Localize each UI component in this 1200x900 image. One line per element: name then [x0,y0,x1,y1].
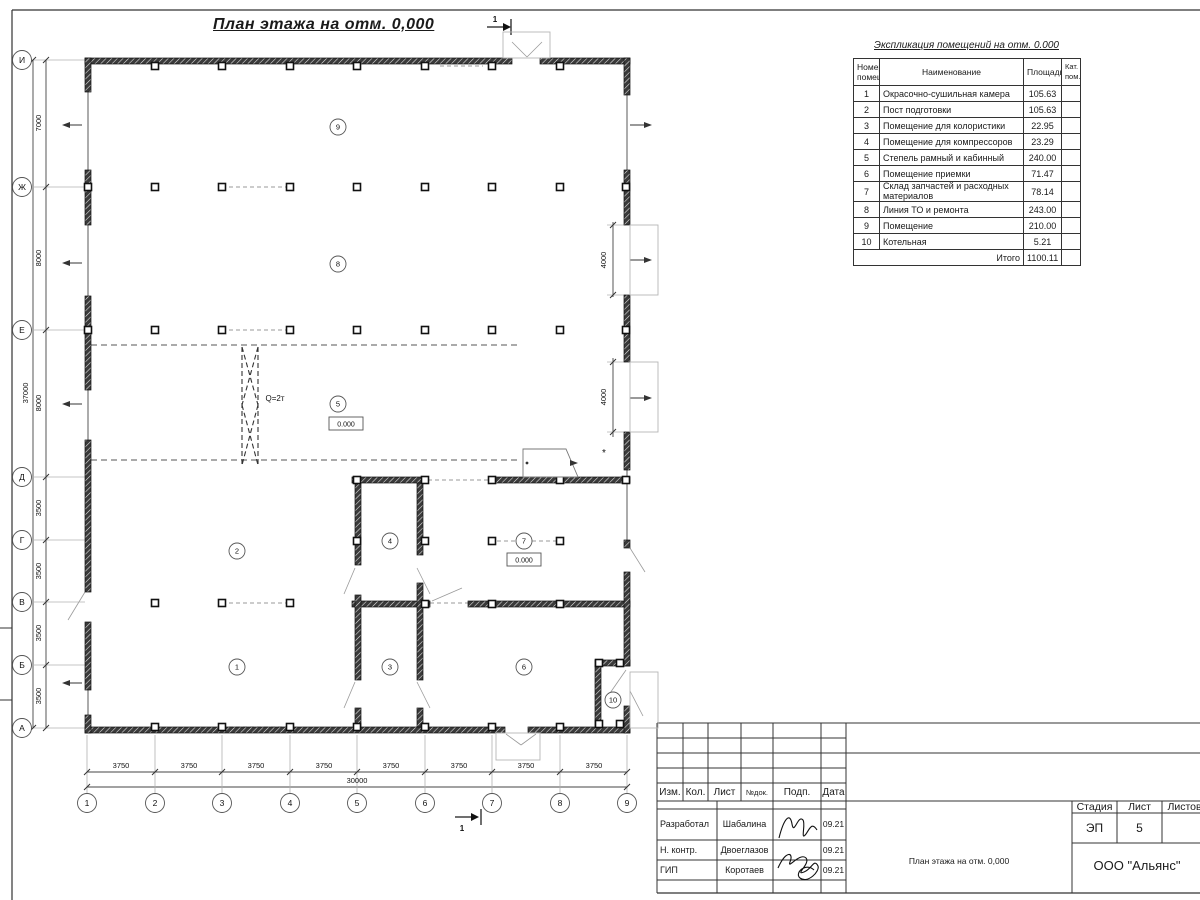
column-marker [489,477,496,484]
section-mark-arrow [471,813,479,821]
dim-total-label: 37000 [21,383,30,404]
column-marker [219,724,226,731]
axis-letter: А [19,723,25,733]
role-developer: Разработал [660,816,716,832]
room-number: 4 [388,537,392,546]
room-num: 8 [854,202,880,218]
column-marker [489,724,496,731]
dim-label: 4000 [599,252,608,269]
table-row: 7Склад запчастей и расходных материалов7… [854,182,1081,202]
room-name: Степель рамный и кабинный [880,150,1024,166]
section-mark-label: 1 [493,15,498,24]
column-marker [557,601,564,608]
door-swing-line [630,691,643,716]
wall-segment [540,58,630,64]
dim-label: 3750 [518,761,535,770]
wall-segment [528,727,630,733]
room-area: 71.47 [1024,166,1062,182]
room-cat [1062,250,1081,266]
axis-letter: Е [19,325,25,335]
wall-segment [85,58,512,64]
room-number: 6 [522,663,526,672]
wall-segment [85,715,91,733]
drawing-sheet: ИЖЕДГВБА12345678970008000800035003500350… [0,0,1200,900]
axis-number: 9 [625,798,630,808]
total-value: 1100.11 [1024,250,1062,266]
wall-segment [85,622,91,690]
column-marker [422,724,429,731]
room-number: 10 [609,696,617,705]
room-number: 7 [522,537,526,546]
column-marker [617,721,624,728]
table-total-row: Итого1100.11 [854,250,1081,266]
column-marker [623,477,630,484]
dim-label: 3750 [113,761,130,770]
wall-segment [624,706,630,733]
door-swing-line [506,734,521,745]
revision-col-list: Лист [708,784,741,801]
door-swing-line [68,592,85,620]
axis-number: 2 [153,798,158,808]
column-marker [354,538,361,545]
col-header-area: Площадь [1024,59,1062,86]
level-mark: 0.000 [337,422,355,429]
wall-segment [595,666,601,727]
dim-label: 4000 [599,389,608,406]
column-marker [152,184,159,191]
axis-letter: Б [19,660,25,670]
column-marker [287,724,294,731]
column-marker [219,600,226,607]
crane-capacity-label: Q=2т [265,394,284,403]
stage-value: ЭП [1072,813,1117,843]
stage-label: Стадия [1072,801,1117,813]
room-num: 6 [854,166,880,182]
column-marker [152,724,159,731]
table-row: 6Помещение приемки71.47 [854,166,1081,182]
stairs-outline [523,449,578,477]
room-num: 9 [854,218,880,234]
column-marker [287,63,294,70]
room-cat [1062,202,1081,218]
column-marker [489,601,496,608]
room-name: Помещение для компрессоров [880,134,1024,150]
room-name: Помещение [880,218,1024,234]
dim-label: 8000 [34,395,43,412]
column-marker [287,184,294,191]
axis-number: 7 [490,798,495,808]
column-marker [354,724,361,731]
column-marker [354,327,361,334]
sheet-number: 5 [1117,813,1162,843]
dim-label: 8000 [34,250,43,267]
room-number: 5 [336,400,340,409]
room-name: Окрасочно-сушильная камера [880,86,1024,102]
table-row: 2Пост подготовки105.63 [854,102,1081,118]
door-swing-line [630,548,645,572]
dim-label: 7000 [34,115,43,132]
room-cat [1062,166,1081,182]
column-marker [152,600,159,607]
room-num: 1 [854,86,880,102]
dim-label: 3500 [34,625,43,642]
room-area: 78.14 [1024,182,1062,202]
floor-plan-title: План этажа на отм. 0,000 [213,16,434,34]
asterisk-mark: * [602,448,606,459]
room-area: 210.00 [1024,218,1062,234]
room-area: 240.00 [1024,150,1062,166]
room-cat [1062,234,1081,250]
table-row: 8Линия ТО и ремонта243.00 [854,202,1081,218]
room-num: 4 [854,134,880,150]
axis-number: 4 [288,798,293,808]
total-label: Итого [854,250,1024,266]
role-gip: ГИП [660,862,716,878]
column-marker [596,660,603,667]
column-marker [354,184,361,191]
date-developer: 09.21 [821,816,846,832]
wall-segment [85,440,91,592]
room-number: 3 [388,663,392,672]
room-num: 3 [854,118,880,134]
room-area: 105.63 [1024,102,1062,118]
role-checker: Н. контр. [660,842,716,858]
signature-developer [779,818,817,838]
dim-total-label: 30000 [347,776,368,785]
room-name: Пост подготовки [880,102,1024,118]
table-row: 5Степель рамный и кабинный240.00 [854,150,1081,166]
column-marker [287,600,294,607]
room-name: Котельная [880,234,1024,250]
column-marker [617,660,624,667]
room-num: 10 [854,234,880,250]
axis-letter: Ж [18,182,26,192]
revision-col-sign: Подп. [773,784,821,801]
column-marker [85,184,92,191]
axis-letter: В [19,597,25,607]
wall-segment [417,583,423,680]
wall-segment [355,595,361,680]
level-mark: 0.000 [515,558,533,565]
axis-number: 3 [220,798,225,808]
porch-outline [496,733,540,760]
door-swing-line [417,682,430,708]
room-cat [1062,134,1081,150]
table-row: 3Помещение для колористики22.95 [854,118,1081,134]
axis-letter: И [19,55,25,65]
door-swing-line [521,734,536,745]
exit-arrow-head [644,395,652,401]
column-marker [219,184,226,191]
axis-letter: Д [19,472,25,482]
dim-label: 3750 [181,761,198,770]
dim-label: 3750 [248,761,265,770]
col-header-name: Наименование [880,59,1024,86]
wall-segment [355,483,361,565]
room-area: 5.21 [1024,234,1062,250]
table-header-row: Номер помещ. Наименование Площадь Кат. п… [854,59,1081,86]
room-number: 8 [336,260,340,269]
wall-segment [85,170,91,225]
sheets-label: Листов [1162,801,1200,813]
door-swing-line [512,42,527,57]
porch-outline [503,32,550,58]
column-marker [354,477,361,484]
column-marker [219,63,226,70]
room-name: Склад запчастей и расходных материалов [880,182,1024,202]
door-swing-line [432,588,462,601]
col-header-category: Кат. пом. [1062,59,1081,86]
column-marker [557,327,564,334]
stairs-direction-arrow [570,460,578,466]
column-marker [422,327,429,334]
room-schedule: Экспликация помещений на отм. 0.000 Номе… [853,40,1080,266]
wall-segment [624,572,630,666]
column-marker [557,538,564,545]
exit-arrow-head [644,257,652,263]
column-marker [489,538,496,545]
column-marker [557,724,564,731]
wall-segment [624,58,630,95]
room-cat [1062,118,1081,134]
dim-label: 3750 [451,761,468,770]
column-marker [596,721,603,728]
wall-segment [352,477,428,483]
column-marker [354,63,361,70]
column-marker [152,63,159,70]
name-developer: Шабалина [716,816,773,832]
stairs-start-dot [526,462,529,465]
axis-number: 5 [355,798,360,808]
column-marker [557,184,564,191]
room-cat [1062,182,1081,202]
room-schedule-title: Экспликация помещений на отм. 0.000 [853,40,1080,51]
axis-letter: Г [20,535,25,545]
door-swing-line [344,682,355,708]
date-gip: 09.21 [821,862,846,878]
document-title: План этажа на отм. 0,000 [848,856,1070,866]
company-name: ООО "Альянс" [1074,846,1200,886]
column-marker [623,327,630,334]
axis-number: 6 [423,798,428,808]
door-swing-line [527,42,542,57]
revision-col-docnum: №док. [741,784,773,801]
room-name: Помещение для колористики [880,118,1024,134]
column-marker [557,477,564,484]
room-area: 105.63 [1024,86,1062,102]
wall-segment [624,170,630,225]
column-marker [623,184,630,191]
wall-segment [85,58,91,92]
column-marker [287,327,294,334]
name-gip: Коротаев [716,862,773,878]
wall-segment [85,296,91,390]
sheet-label: Лист [1117,801,1162,813]
wall-segment [624,432,630,470]
column-marker [422,601,429,608]
room-number: 9 [336,123,340,132]
dim-label: 3750 [383,761,400,770]
dim-label: 3500 [34,563,43,580]
revision-col-date: Дата [821,784,846,801]
room-number: 2 [235,547,239,556]
exit-arrow-head [62,680,70,686]
dim-label: 3750 [316,761,333,770]
section-mark-label: 1 [460,824,465,833]
porch-outline [630,672,658,728]
exit-arrow-head [62,260,70,266]
room-area: 23.29 [1024,134,1062,150]
room-num: 7 [854,182,880,202]
dim-label: 3500 [34,688,43,705]
room-area: 22.95 [1024,118,1062,134]
revision-col-kol: Кол. [683,784,708,801]
dim-label: 3500 [34,500,43,517]
room-cat [1062,102,1081,118]
name-checker: Двоеглазов [716,842,773,858]
column-marker [422,184,429,191]
col-header-number: Номер помещ. [854,59,880,86]
dim-label: 3750 [586,761,603,770]
room-name: Линия ТО и ремонта [880,202,1024,218]
room-number: 1 [235,663,239,672]
exit-arrow-head [644,122,652,128]
column-marker [422,538,429,545]
table-row: 9Помещение210.00 [854,218,1081,234]
table-row: 4Помещение для компрессоров23.29 [854,134,1081,150]
column-marker [489,63,496,70]
revision-col-izm: Изм. [657,784,683,801]
room-cat [1062,150,1081,166]
door-swing-line [344,568,355,594]
wall-segment [624,540,630,548]
room-cat [1062,86,1081,102]
column-marker [489,327,496,334]
exit-arrow-head [62,122,70,128]
column-marker [557,63,564,70]
column-marker [152,327,159,334]
signature-checker [778,854,818,879]
column-marker [422,63,429,70]
axis-number: 8 [558,798,563,808]
table-row: 1Окрасочно-сушильная камера105.63 [854,86,1081,102]
column-marker [219,327,226,334]
wall-segment [85,727,505,733]
table-row: 10Котельная5.21 [854,234,1081,250]
exit-arrow-head [62,401,70,407]
room-schedule-table: Номер помещ. Наименование Площадь Кат. п… [853,58,1081,266]
column-marker [422,477,429,484]
section-mark-arrow [503,23,511,31]
room-num: 5 [854,150,880,166]
column-marker [489,184,496,191]
axis-number: 1 [85,798,90,808]
room-cat [1062,218,1081,234]
room-num: 2 [854,102,880,118]
column-marker [85,327,92,334]
room-area: 243.00 [1024,202,1062,218]
room-name: Помещение приемки [880,166,1024,182]
date-checker: 09.21 [821,842,846,858]
